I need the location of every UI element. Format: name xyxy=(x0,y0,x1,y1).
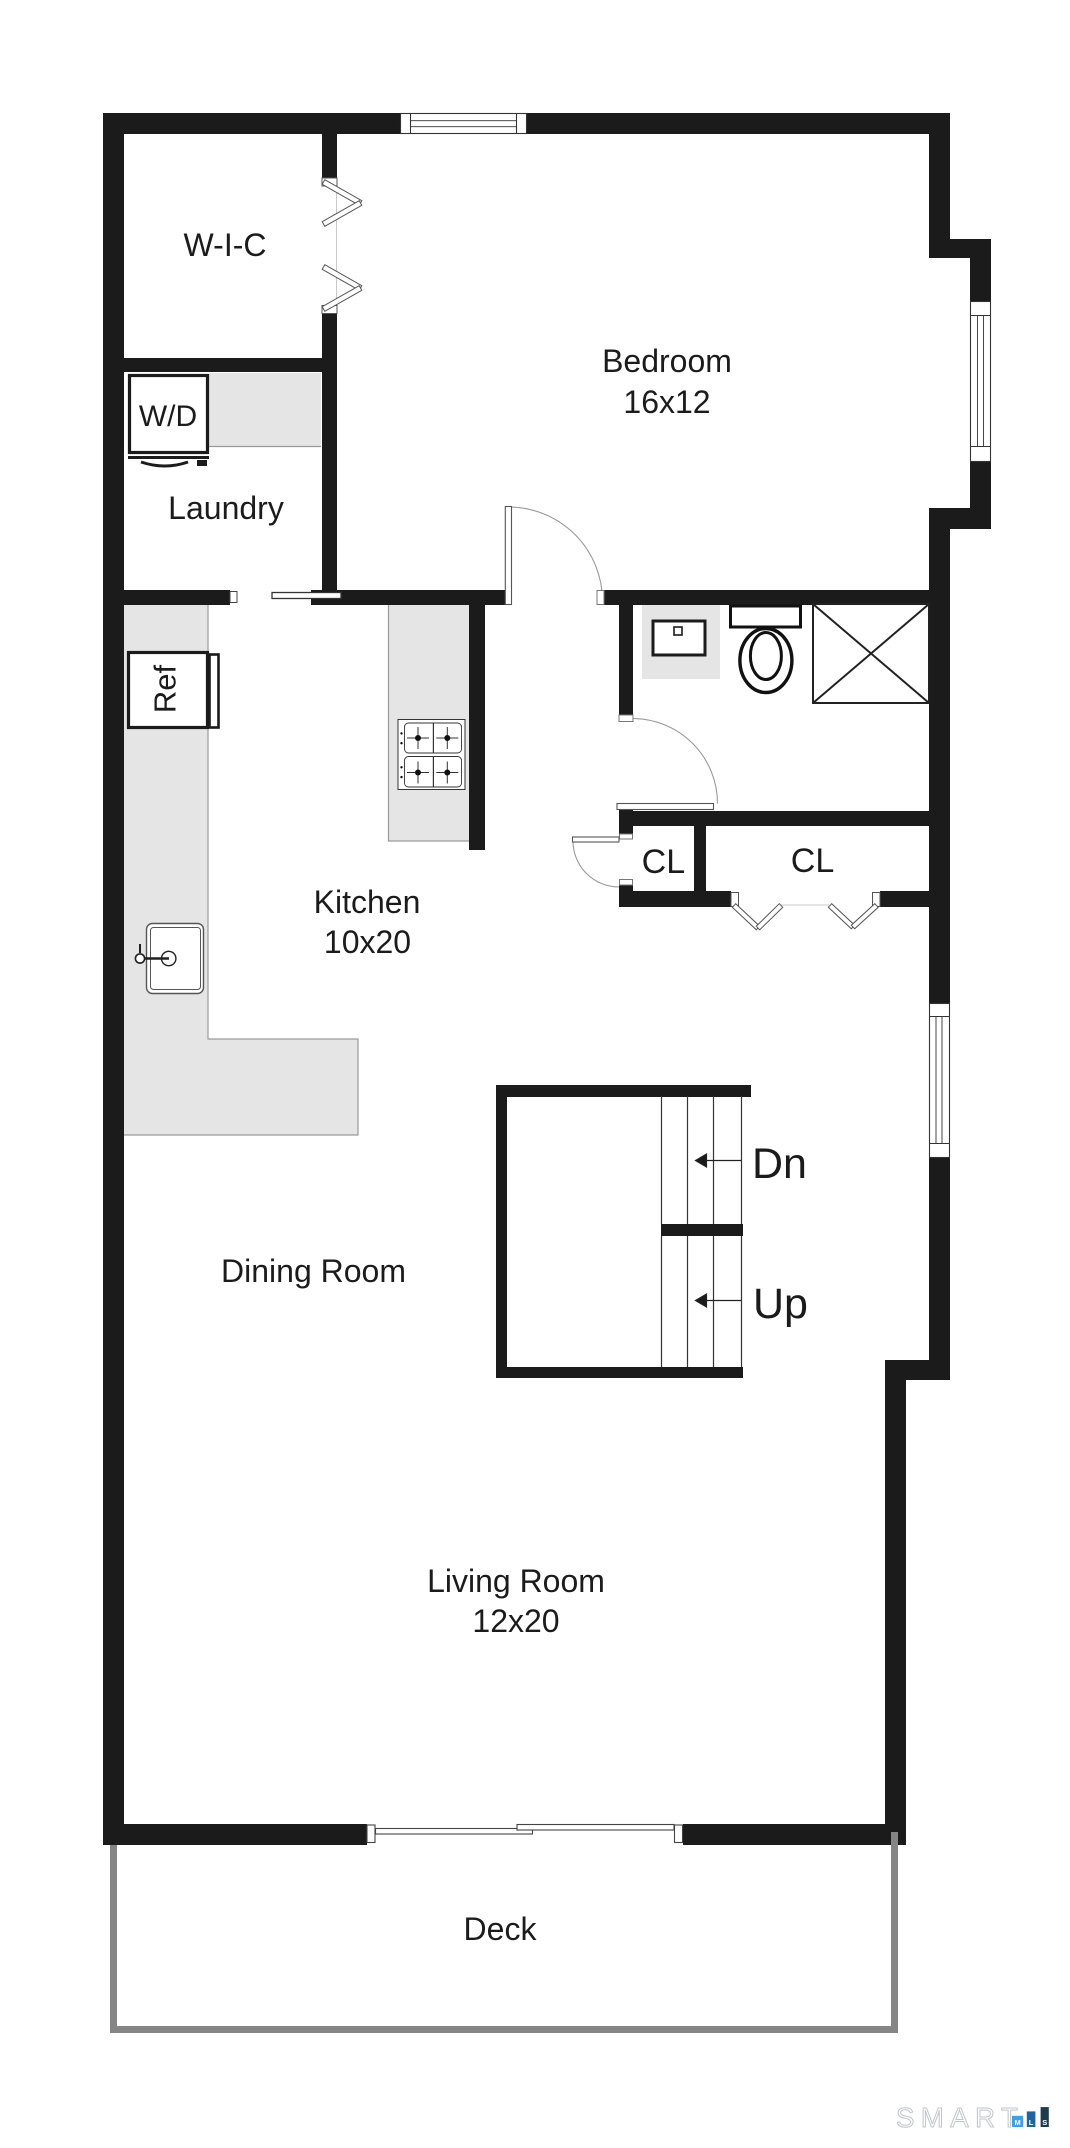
svg-text:L: L xyxy=(1029,2118,1034,2127)
svg-text:Dining Room: Dining Room xyxy=(221,1253,406,1289)
svg-text:W/D: W/D xyxy=(139,400,197,433)
svg-text:CL: CL xyxy=(642,843,685,881)
svg-text:Bedroom: Bedroom xyxy=(602,343,732,379)
svg-text:10x20: 10x20 xyxy=(324,924,411,960)
svg-text:Living Room: Living Room xyxy=(427,1563,605,1599)
svg-text:16x12: 16x12 xyxy=(623,384,710,420)
svg-text:Deck: Deck xyxy=(464,1911,538,1947)
svg-text:M: M xyxy=(1014,2118,1020,2127)
svg-text:Laundry: Laundry xyxy=(168,490,284,526)
svg-text:Dn: Dn xyxy=(752,1140,807,1188)
svg-text:Kitchen: Kitchen xyxy=(314,884,421,920)
svg-text:Up: Up xyxy=(753,1280,808,1328)
svg-text:CL: CL xyxy=(791,842,834,880)
svg-text:Ref: Ref xyxy=(148,664,183,713)
svg-text:SMART: SMART xyxy=(896,2102,1024,2133)
svg-text:12x20: 12x20 xyxy=(472,1603,559,1639)
svg-text:W-I-C: W-I-C xyxy=(184,227,267,263)
svg-text:S: S xyxy=(1042,2118,1047,2127)
